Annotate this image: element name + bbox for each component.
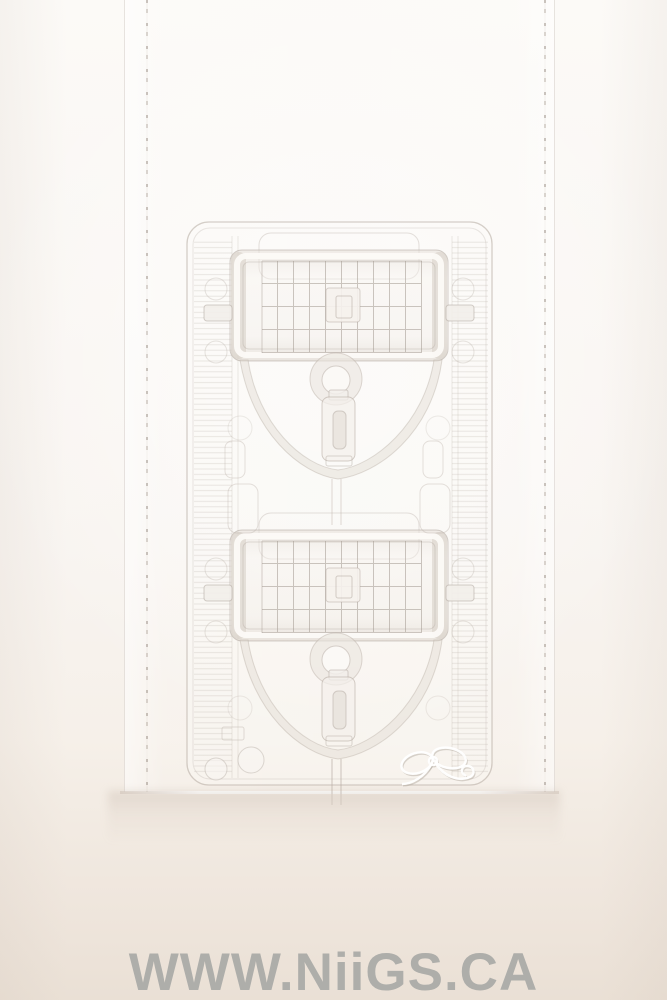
- blister-tray: [0, 0, 667, 1000]
- product-photo: WWW.NiiGS.CA: [0, 0, 667, 1000]
- watermark-text: WWW.NiiGS.CA: [129, 946, 538, 999]
